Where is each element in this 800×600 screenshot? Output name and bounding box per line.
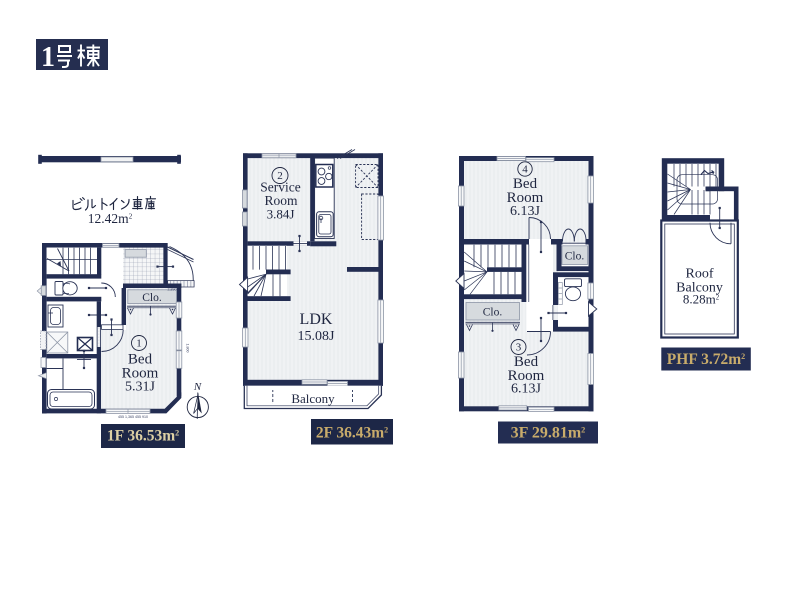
svg-text:4: 4 bbox=[522, 164, 528, 176]
svg-text:1: 1 bbox=[41, 42, 55, 73]
svg-text:2F 36.43m2: 2F 36.43m2 bbox=[316, 425, 388, 442]
svg-text:3.84J: 3.84J bbox=[267, 207, 295, 222]
svg-text:5.31J: 5.31J bbox=[125, 380, 156, 395]
svg-text:12.42m2: 12.42m2 bbox=[88, 211, 133, 226]
svg-text:1,800: 1,800 bbox=[186, 344, 190, 353]
svg-text:1: 1 bbox=[136, 338, 142, 350]
svg-text:3: 3 bbox=[516, 342, 522, 354]
svg-text:6.13J: 6.13J bbox=[511, 382, 542, 397]
svg-text:2,890: 2,890 bbox=[168, 288, 177, 292]
svg-text:Clo.: Clo. bbox=[483, 307, 503, 319]
svg-text:Clo.: Clo. bbox=[565, 251, 585, 263]
svg-text:N: N bbox=[193, 381, 202, 393]
svg-text:Roof: Roof bbox=[686, 267, 714, 282]
svg-text:6.13J: 6.13J bbox=[510, 204, 541, 219]
svg-text:455 1,365 455 910: 455 1,365 455 910 bbox=[118, 415, 148, 419]
svg-text:3F 29.81m2: 3F 29.81m2 bbox=[511, 425, 586, 442]
svg-text:Clo.: Clo. bbox=[142, 292, 162, 304]
svg-text:15.08J: 15.08J bbox=[298, 329, 336, 344]
svg-text:Balcony: Balcony bbox=[291, 391, 335, 406]
svg-text:1F 36.53m2: 1F 36.53m2 bbox=[107, 428, 179, 445]
svg-text:8.28m2: 8.28m2 bbox=[683, 292, 720, 307]
svg-text:LDK: LDK bbox=[300, 311, 333, 328]
svg-text:PHF 3.72m2: PHF 3.72m2 bbox=[667, 351, 745, 368]
